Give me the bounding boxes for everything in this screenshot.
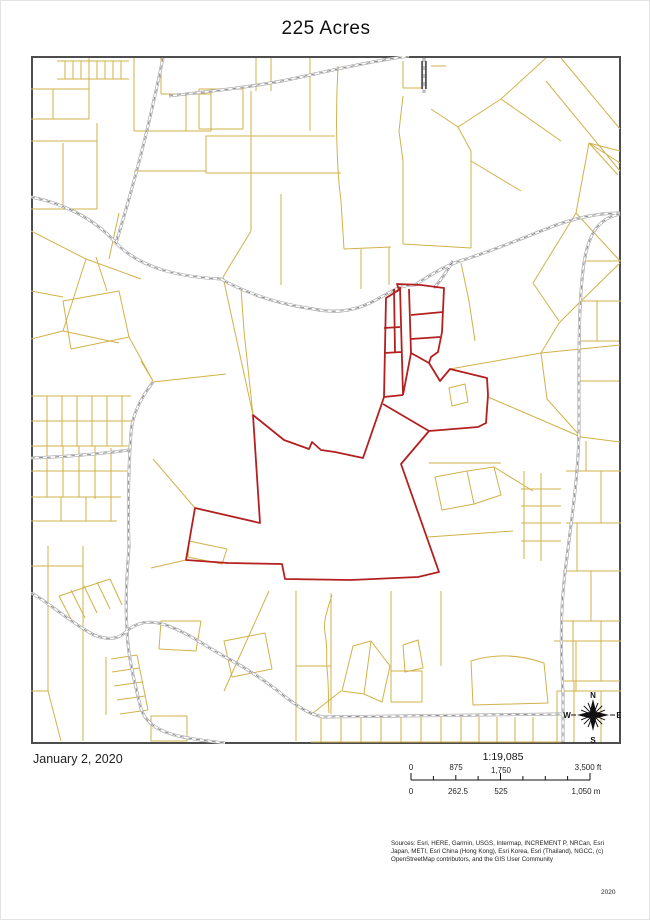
scalebar-m-262: 262.5 — [448, 787, 469, 796]
scalebar-m-1050: 1,050 m — [572, 787, 601, 796]
year-label: 2020 — [601, 889, 641, 896]
compass-label-east: E — [616, 711, 621, 720]
scalebar-ft-1750: 1,750 — [491, 766, 512, 775]
map-date: January 2, 2020 — [33, 752, 123, 766]
scalebar-ft-875: 875 — [449, 763, 463, 772]
map-export-page: 225 Acres — [0, 0, 650, 920]
page-title: 225 Acres — [1, 18, 650, 40]
map-canvas: N E S W — [31, 56, 621, 744]
sources-attribution: Sources: Esri, HERE, Garmin, USGS, Inter… — [391, 840, 623, 864]
compass-label-south: S — [590, 736, 596, 744]
scalebar: 1:19,085 0 875 1,750 3,500 ft 0 262.5 52… — [401, 746, 631, 801]
compass-label-west: W — [563, 711, 571, 720]
scalebar-m-525: 525 — [494, 787, 508, 796]
compass-label-north: N — [590, 691, 596, 700]
scalebar-ticks — [411, 773, 590, 780]
scale-ratio: 1:19,085 — [483, 751, 524, 763]
scalebar-m-0: 0 — [409, 787, 414, 796]
scalebar-ft-0: 0 — [409, 763, 414, 772]
scalebar-ft-3500: 3,500 ft — [575, 763, 602, 772]
compass-hub — [589, 711, 597, 719]
